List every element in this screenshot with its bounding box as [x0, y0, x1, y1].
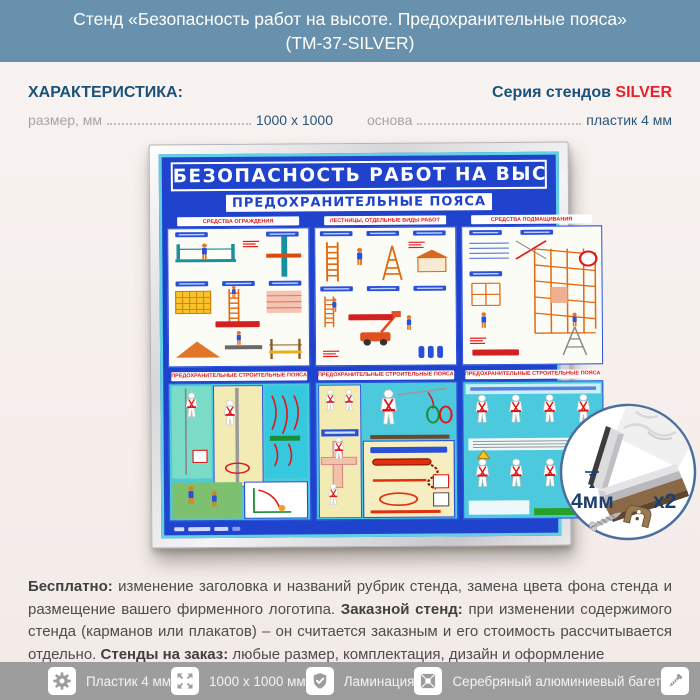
series-label: Серия стендов — [492, 84, 611, 101]
spec-base-label: основа — [367, 112, 412, 128]
scaffolds-illustration — [462, 226, 603, 363]
spec-row: размер, мм 1000 x 1000 основа пластик 4 … — [28, 112, 672, 128]
description-bold: Заказной стенд: — [341, 601, 469, 618]
logo-mark — [188, 527, 210, 531]
spec-size: размер, мм 1000 x 1000 — [28, 112, 333, 128]
spec-base-value: пластик 4 мм — [586, 112, 672, 128]
feature-label: Серебряный алюминиевый багет — [452, 674, 661, 689]
poster: БЕЗОПАСНОСТЬ РАБОТ НА ВЫСОТЕ ПРЕДОХРАНИТ… — [159, 152, 562, 539]
panel-title: СРЕДСТВА ПОДМАЩИВАНИЯ — [471, 214, 593, 224]
fencing-illustration — [168, 228, 309, 365]
feature-plastic: Пластик 4 мм — [48, 667, 171, 695]
characteristics-heading: ХАРАКТЕРИСТИКА: — [28, 84, 183, 102]
description-text: любые размер, комплектация, дизайн и офо… — [232, 646, 604, 663]
spec-size-value: 1000 x 1000 — [256, 112, 333, 128]
gear-icon — [48, 667, 76, 695]
poster-panel-belts-2: ПРЕДОХРАНИТЕЛЬНЫЕ СТРОИТЕЛЬНЫЕ ПОЯСА — [315, 370, 458, 520]
frame-icon — [414, 667, 442, 695]
feature-lamination: Ламинация — [306, 667, 415, 695]
panel-illustration — [168, 382, 311, 521]
frame-corner-illustration: 4мм x2 — [558, 402, 698, 542]
series-value: SILVER — [615, 84, 672, 101]
series-badge: Серия стендов SILVER — [492, 84, 672, 102]
feature-frame: Серебряный алюминиевый багет — [414, 667, 661, 695]
product-title: Стенд «Безопасность работ на высоте. Пре… — [0, 7, 700, 31]
feature-label: Ламинация — [344, 674, 415, 689]
panel-title: ПРЕДОХРАНИТЕЛЬНЫЕ СТРОИТЕЛЬНЫЕ ПОЯСА — [465, 369, 601, 379]
logo-mark — [214, 526, 228, 530]
feature-label: 1000 х 1000 мм — [209, 674, 306, 689]
feature-size: 1000 х 1000 мм — [171, 667, 306, 695]
panel-title: ПРЕДОХРАНИТЕЛЬНЫЕ СТРОИТЕЛЬНЫЕ ПОЯСА — [171, 371, 307, 381]
features-bar: Пластик 4 мм 1000 х 1000 мм Ламинация — [0, 662, 700, 700]
poster-panel-belts-1: ПРЕДОХРАНИТЕЛЬНЫЕ СТРОИТЕЛЬНЫЕ ПОЯСА — [168, 371, 311, 521]
panel-illustration — [315, 381, 458, 520]
panel-title: СРЕДСТВА ОГРАЖДЕНИЯ — [177, 216, 299, 226]
poster-panel-ladders: ЛЕСТНИЦЫ, ОТДЕЛЬНЫЕ ВИДЫ РАБОТ — [314, 215, 457, 365]
panel-illustration — [314, 226, 457, 365]
description-bold: Бесплатно: — [28, 578, 118, 595]
shield-check-icon — [306, 667, 334, 695]
product-model: (ТМ-37-SILVER) — [0, 31, 700, 55]
expand-icon — [171, 667, 199, 695]
ladders-illustration — [315, 227, 456, 364]
panel-illustration — [461, 225, 604, 364]
belts-illustration-1 — [169, 383, 310, 520]
logo-mark — [232, 526, 240, 530]
screw-icon — [661, 667, 689, 695]
quantity-label: x2 — [653, 490, 676, 513]
panel-title: ПРЕДОХРАНИТЕЛЬНЫЕ СТРОИТЕЛЬНЫЕ ПОЯСА — [318, 370, 454, 380]
stand-frame: БЕЗОПАСНОСТЬ РАБОТ НА ВЫСОТЕ ПРЕДОХРАНИТ… — [149, 142, 572, 549]
description-paragraph: Бесплатно: изменение заголовка и названи… — [28, 576, 672, 666]
poster-title: БЕЗОПАСНОСТЬ РАБОТ НА ВЫСОТЕ — [171, 160, 547, 192]
panel-illustration — [167, 227, 310, 366]
poster-logo-strip — [164, 520, 558, 536]
thickness-label: 4мм — [571, 490, 614, 513]
feature-label: Пластик 4 мм — [86, 674, 171, 689]
dot-leader — [107, 122, 251, 125]
poster-panel-grid: СРЕДСТВА ОГРАЖДЕНИЯ — [162, 214, 558, 523]
dot-leader — [417, 122, 581, 125]
page-header: Стенд «Безопасность работ на высоте. Пре… — [0, 0, 700, 62]
panel-title: ЛЕСТНИЦЫ, ОТДЕЛЬНЫЕ ВИДЫ РАБОТ — [324, 215, 446, 225]
poster-panel-fencing: СРЕДСТВА ОГРАЖДЕНИЯ — [167, 216, 310, 366]
spec-size-label: размер, мм — [28, 112, 102, 128]
description-bold: Стенды на заказ: — [101, 646, 233, 663]
belts-illustration-2 — [316, 382, 457, 519]
poster-panel-scaffolds: СРЕДСТВА ПОДМАЩИВАНИЯ — [461, 214, 604, 364]
logo-mark — [174, 527, 184, 531]
frame-detail-inset: 4мм x2 — [558, 402, 698, 542]
characteristics-header: ХАРАКТЕРИСТИКА: Серия стендов SILVER — [28, 84, 672, 102]
spec-base: основа пластик 4 мм — [367, 112, 672, 128]
poster-subtitle: ПРЕДОХРАНИТЕЛЬНЫЕ ПОЯСА — [226, 193, 492, 212]
feature-fasteners: Крепеж — [661, 667, 700, 695]
